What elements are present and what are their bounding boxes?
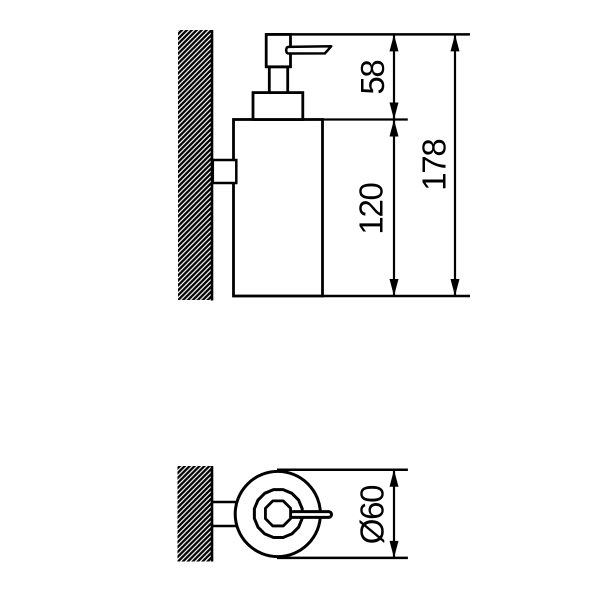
svg-text:178: 178	[416, 140, 453, 191]
svg-text:120: 120	[353, 182, 390, 234]
svg-text:Ø60: Ø60	[354, 485, 391, 544]
svg-text:58: 58	[354, 61, 391, 95]
